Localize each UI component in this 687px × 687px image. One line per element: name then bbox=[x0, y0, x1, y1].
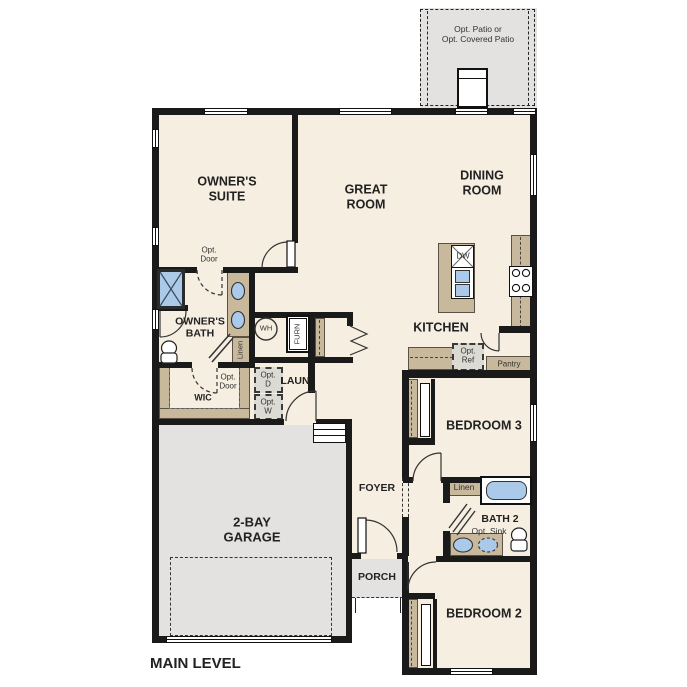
linen-label-bath2: Linen bbox=[454, 482, 475, 492]
window-bedroom3-right bbox=[530, 404, 537, 442]
wall-utility-bottom bbox=[249, 357, 315, 363]
room-label-bath2: BATH 2 bbox=[481, 513, 518, 525]
garage-step-line1 bbox=[314, 429, 345, 430]
floor-plan: Opt. Patio or Opt. Covered Patio OWNER'S… bbox=[0, 0, 687, 687]
room-label-wic: WIC bbox=[194, 393, 212, 404]
opening-bedroom2-door bbox=[408, 556, 436, 562]
bedroom3-closet-door bbox=[420, 383, 430, 437]
room-label-kitchen: KITCHEN bbox=[413, 321, 469, 336]
wall-pantry-top bbox=[499, 326, 537, 333]
window-dining-top bbox=[513, 108, 536, 115]
opening-opt-door-suite bbox=[197, 267, 223, 273]
dishwasher-label: DW bbox=[456, 251, 469, 260]
opt-dryer-label: Opt. D bbox=[260, 371, 275, 390]
wall-owners-suite-right bbox=[292, 115, 298, 243]
wall-bedroom3-bottom-a bbox=[403, 477, 413, 483]
room-label-bedroom3: BEDROOM 3 bbox=[446, 419, 522, 434]
room-label-great-room: GREAT ROOM bbox=[345, 182, 388, 212]
room-label-porch: PORCH bbox=[358, 571, 396, 583]
wall-bedroom2-closet-jamb bbox=[433, 599, 437, 668]
room-label-laundry: LAUN bbox=[280, 375, 309, 387]
room-label-dining-room: DINING ROOM bbox=[460, 168, 504, 198]
wall-foyer-right bbox=[402, 370, 409, 675]
opt-refrigerator-label: Opt. Ref bbox=[460, 347, 475, 366]
island-sink-basin1 bbox=[455, 270, 470, 283]
garage-step-line2 bbox=[314, 435, 345, 436]
patio-slider-door bbox=[455, 108, 488, 115]
wall-left bbox=[152, 108, 159, 643]
bedroom2-closet-door bbox=[421, 604, 431, 666]
wall-garage-right bbox=[346, 419, 352, 643]
room-label-pantry: Pantry bbox=[497, 359, 520, 368]
room-label-owners-suite: OWNER'S SUITE bbox=[197, 174, 256, 204]
wall-bath2-left-b bbox=[443, 531, 450, 556]
water-heater-label: WH bbox=[260, 325, 273, 334]
counter-bottom-dashline bbox=[410, 357, 453, 359]
fireplace bbox=[457, 68, 488, 108]
garage-door-opening bbox=[166, 636, 332, 643]
wall-bedroom2-closet-top bbox=[402, 593, 435, 599]
island-sink-basin2 bbox=[455, 284, 470, 297]
opening-wic-door bbox=[192, 362, 218, 368]
bedroom3-closet-rod bbox=[411, 381, 413, 436]
room-label-bedroom2: BEDROOM 2 bbox=[446, 607, 522, 622]
stove bbox=[509, 266, 533, 297]
room-label-foyer: FOYER bbox=[359, 482, 395, 494]
bath2-vanity bbox=[450, 533, 503, 556]
window-owners-suite-left1 bbox=[152, 129, 159, 148]
wall-bath2-left-a bbox=[443, 477, 450, 503]
plan-title: MAIN LEVEL bbox=[150, 655, 241, 673]
window-owners-bath bbox=[152, 309, 159, 330]
wall-bedroom3-closet-jamb bbox=[431, 379, 435, 439]
garage-door-dashed bbox=[170, 557, 332, 636]
garage-steps bbox=[313, 423, 346, 443]
bathtub bbox=[486, 481, 527, 500]
opt-sink-label: Opt. Sink bbox=[472, 526, 507, 536]
opening-garage-entry bbox=[284, 419, 316, 425]
window-owners-suite-top bbox=[204, 108, 248, 115]
opt-washer-label: Opt. W bbox=[260, 398, 275, 417]
opening-front-door bbox=[361, 553, 397, 559]
furnace-label: FURN bbox=[294, 324, 303, 345]
porch-walkway bbox=[355, 598, 401, 613]
wall-kitchen-bottom bbox=[402, 370, 537, 378]
wall-coat-closet-jamb bbox=[347, 312, 353, 326]
linen-label-owners: Linen bbox=[237, 341, 246, 359]
owners-bath-vanity bbox=[227, 272, 250, 337]
patio-label: Opt. Patio or Opt. Covered Patio bbox=[418, 24, 538, 44]
wall-coat-closet-bottom bbox=[308, 357, 353, 363]
cased-opening-hall bbox=[402, 478, 409, 517]
opt-door-label-wic: Opt. Door bbox=[219, 373, 236, 392]
coat-closet-rod bbox=[319, 320, 321, 355]
shower bbox=[157, 269, 185, 309]
wic-shelf-bottom bbox=[159, 408, 250, 419]
room-label-owners-bath: OWNER'S BATH bbox=[175, 316, 225, 341]
fireplace-line bbox=[459, 78, 486, 79]
window-owners-suite-left2 bbox=[152, 227, 159, 246]
wall-bedroom3-closet-bottom bbox=[405, 438, 435, 445]
room-label-garage: 2-BAY GARAGE bbox=[223, 515, 280, 546]
window-great-room-top bbox=[339, 108, 392, 115]
window-bedroom2-bottom bbox=[450, 668, 493, 675]
bedroom2-closet-rod bbox=[411, 601, 413, 666]
window-dining-right bbox=[530, 154, 537, 196]
opt-door-label-suite: Opt. Door bbox=[200, 246, 217, 265]
